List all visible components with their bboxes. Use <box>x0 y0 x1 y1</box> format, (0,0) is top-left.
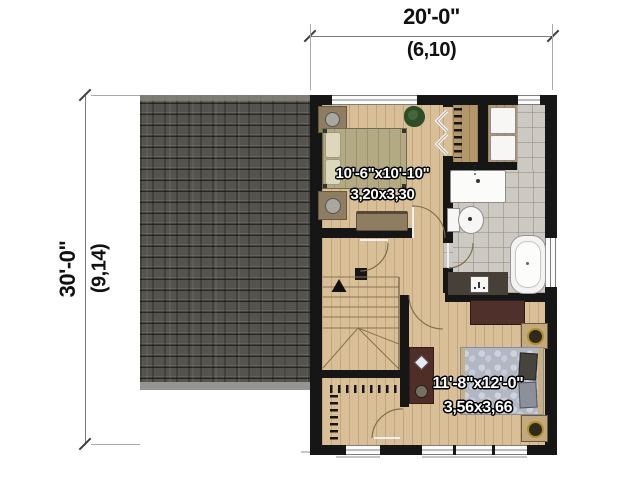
bedroom1-size-label: 10'-6"x10'-10" 3,20x3,30 <box>322 163 443 205</box>
bed-corner <box>402 129 406 133</box>
bifold-opening <box>443 107 453 156</box>
wall-bedroom2-west <box>400 295 409 407</box>
dryer-icon <box>490 135 516 161</box>
roof-ridge-top <box>140 95 312 101</box>
roof-eave-bottom <box>140 382 312 390</box>
closet2-hanger-rod-top <box>330 385 400 393</box>
small-sink-icon <box>470 276 489 293</box>
window-bathroom-north <box>518 95 540 105</box>
floor-plan: 10'-6"x10'-10" 3,20x3,30 11'-8"x12'-0" 3… <box>310 95 557 455</box>
pillow <box>325 132 341 158</box>
window-sill <box>336 456 380 458</box>
nightstand <box>521 323 548 349</box>
wall-closet2-north <box>322 370 400 378</box>
dresser <box>470 300 525 325</box>
sink-dot <box>474 287 476 289</box>
bedroom2-size-label: 11'-8"x12'-0" 3,56x3,66 <box>409 372 547 420</box>
window-mullion <box>453 445 456 455</box>
window-closet2-south <box>346 445 380 455</box>
dimension-left-line <box>85 95 86 445</box>
wall-closet-south <box>443 162 517 170</box>
dimension-left-imperial: 30'-0" <box>55 219 81 319</box>
plant-icon <box>404 106 425 127</box>
dimension-top-imperial: 20'-0" <box>320 4 543 30</box>
desk-chair-icon <box>414 355 430 371</box>
dimension-extension-line <box>91 95 140 96</box>
window-bathroom-east <box>545 238 557 287</box>
bathtub <box>510 235 546 294</box>
bathroom-door-opening <box>443 243 453 268</box>
window-sill <box>422 456 527 458</box>
stair-wall-stub <box>355 268 367 280</box>
wall-left <box>310 95 322 455</box>
floor-plan-page: 20'-0" (6,10) 30'-0" (9,14) <box>0 0 640 480</box>
window-bedroom1-north <box>332 95 417 105</box>
closet1-hanger-rod <box>454 108 462 158</box>
sink-dot <box>483 287 485 289</box>
window-mullion <box>492 445 495 455</box>
dimension-extension-line <box>552 24 553 90</box>
dimension-top-metric: (6,10) <box>320 39 543 62</box>
bedroom2-size-imperial: 11'-8"x12'-0" <box>409 372 547 396</box>
vanity-sink <box>450 170 506 203</box>
dimension-extension-line <box>310 24 311 90</box>
toilet-flush-icon <box>468 217 472 221</box>
bathroom-counter <box>448 272 508 295</box>
faucet-icon <box>476 179 480 183</box>
faucet-icon <box>478 282 480 288</box>
table-lamp-icon <box>527 328 544 345</box>
bedroom1-size-imperial: 10'-6"x10'-10" <box>322 163 443 184</box>
table-lamp-icon <box>325 112 340 127</box>
bedroom2-size-metric: 3,56x3,66 <box>409 396 547 420</box>
table-lamp-icon <box>527 421 544 438</box>
toilet-bowl <box>458 206 484 234</box>
dimension-extension-line <box>91 444 140 445</box>
roof <box>140 95 312 390</box>
bench <box>356 211 408 231</box>
window-bedroom2-south <box>422 445 527 455</box>
wall-closet-east <box>478 105 488 170</box>
bedroom1-size-metric: 3,20x3,30 <box>322 184 443 205</box>
washer-icon <box>490 107 516 134</box>
plant-leaf <box>408 110 418 120</box>
bathtub-drain-icon <box>526 262 529 265</box>
dimension-top-line <box>310 36 553 37</box>
closet2-hanger-rod-left <box>330 395 338 440</box>
bed-corner <box>323 129 327 133</box>
dimension-left-metric: (9,14) <box>89 219 112 319</box>
